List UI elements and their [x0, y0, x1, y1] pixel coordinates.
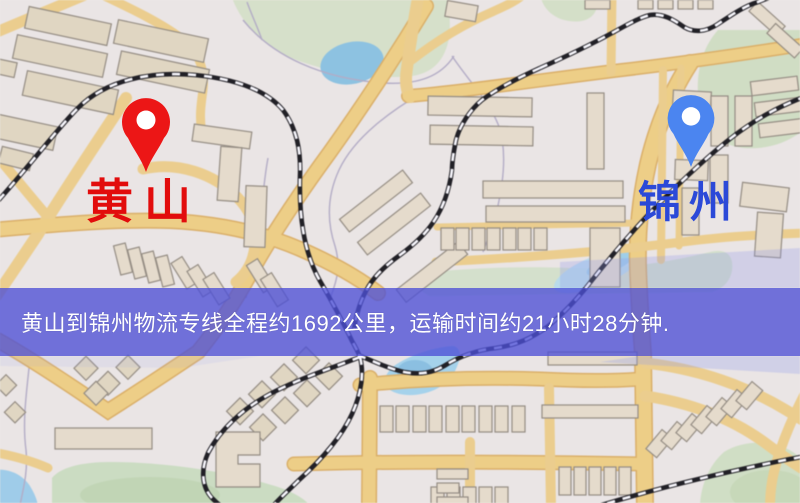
destination-city-label: 锦州 — [638, 182, 740, 225]
origin-pin-icon[interactable] — [120, 96, 172, 174]
tint-overlays — [0, 0, 800, 503]
route-summary-text: 黄山到锦州物流专线全程约1692公里，运输时间约21小时28分钟. — [0, 306, 670, 338]
destination-pin-icon[interactable] — [665, 93, 717, 169]
origin-city-label: 黄山 — [86, 180, 202, 227]
map-canvas[interactable] — [0, 0, 800, 503]
route-info-banner: 黄山到锦州物流专线全程约1692公里，运输时间约21小时28分钟. — [0, 288, 800, 356]
map-screenshot: 黄山 锦州 黄山到锦州物流专线全程约1692公里，运输时间约21小时28分钟. — [0, 0, 800, 503]
